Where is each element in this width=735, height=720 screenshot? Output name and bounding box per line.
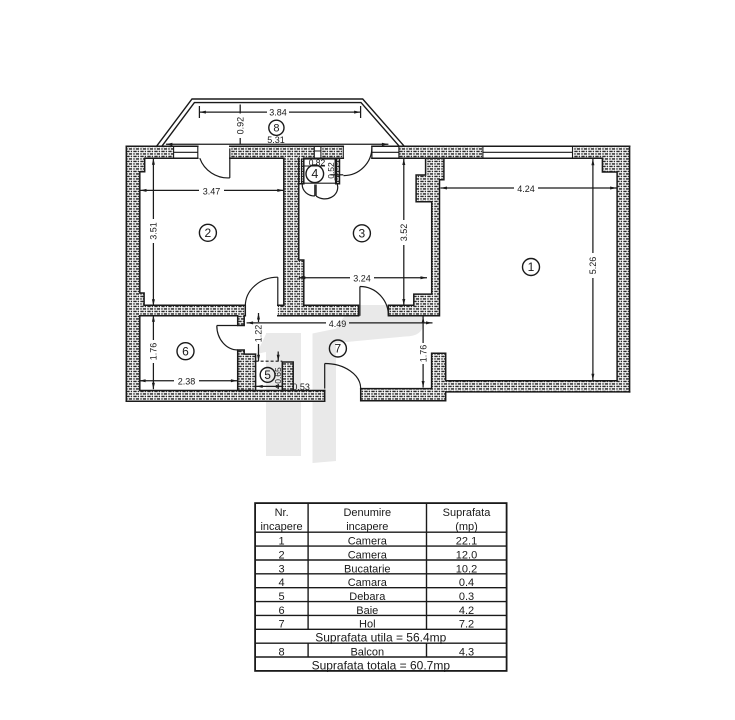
svg-text:incapere: incapere — [260, 521, 302, 533]
svg-text:Debara: Debara — [349, 591, 386, 603]
svg-text:0.53: 0.53 — [292, 382, 310, 392]
svg-text:Suprafata totala = 60.7mp: Suprafata totala = 60.7mp — [312, 658, 451, 672]
svg-text:2: 2 — [279, 549, 285, 561]
svg-text:3.84: 3.84 — [269, 108, 287, 118]
svg-text:7: 7 — [335, 342, 342, 356]
svg-text:5: 5 — [264, 368, 271, 382]
svg-text:1.76: 1.76 — [418, 345, 428, 363]
svg-text:Nr.: Nr. — [275, 507, 289, 519]
svg-text:3: 3 — [359, 227, 366, 241]
svg-text:4: 4 — [311, 167, 318, 181]
svg-text:Camera: Camera — [348, 549, 388, 561]
svg-text:7: 7 — [279, 619, 285, 631]
svg-text:(mp): (mp) — [455, 521, 478, 533]
svg-text:0.3: 0.3 — [459, 591, 474, 603]
svg-text:6: 6 — [279, 605, 285, 617]
svg-text:0.92: 0.92 — [235, 117, 245, 135]
svg-text:4: 4 — [279, 577, 285, 589]
svg-text:3.51: 3.51 — [149, 222, 159, 240]
svg-text:22.1: 22.1 — [456, 536, 477, 548]
svg-text:4.24: 4.24 — [517, 184, 535, 194]
svg-text:3.24: 3.24 — [353, 274, 371, 284]
svg-text:5: 5 — [279, 591, 285, 603]
svg-text:3.52: 3.52 — [399, 224, 409, 242]
svg-text:1: 1 — [279, 536, 285, 548]
svg-text:4.49: 4.49 — [329, 319, 347, 329]
svg-text:4.2: 4.2 — [459, 605, 474, 617]
svg-text:Camara: Camara — [348, 577, 388, 589]
svg-text:7.2: 7.2 — [459, 619, 474, 631]
svg-text:Suprafata: Suprafata — [443, 507, 492, 519]
svg-text:1.22: 1.22 — [254, 325, 264, 343]
svg-text:Suprafata utila = 56.4mp: Suprafata utila = 56.4mp — [315, 631, 446, 645]
svg-text:Bucatarie: Bucatarie — [344, 563, 390, 575]
svg-text:10.2: 10.2 — [456, 563, 477, 575]
svg-text:Denumire: Denumire — [343, 507, 391, 519]
svg-text:3.47: 3.47 — [203, 186, 221, 196]
svg-text:0.52: 0.52 — [326, 162, 336, 179]
svg-text:5.26: 5.26 — [588, 257, 598, 275]
svg-text:incapere: incapere — [346, 521, 388, 533]
svg-text:6: 6 — [182, 344, 189, 358]
svg-text:8: 8 — [279, 647, 285, 659]
svg-text:Baie: Baie — [356, 605, 378, 617]
svg-text:8: 8 — [273, 123, 279, 135]
svg-text:Camera: Camera — [348, 536, 388, 548]
svg-text:5.31: 5.31 — [267, 135, 285, 145]
svg-text:4.3: 4.3 — [459, 647, 474, 659]
svg-text:Balcon: Balcon — [350, 647, 384, 659]
svg-text:3: 3 — [279, 563, 285, 575]
svg-text:2.38: 2.38 — [178, 377, 196, 387]
svg-text:1.76: 1.76 — [149, 343, 159, 361]
svg-text:1: 1 — [528, 260, 535, 274]
svg-text:12.0: 12.0 — [456, 549, 477, 561]
svg-text:0.4: 0.4 — [459, 577, 474, 589]
svg-text:Hol: Hol — [359, 619, 376, 631]
svg-text:2: 2 — [205, 226, 212, 240]
